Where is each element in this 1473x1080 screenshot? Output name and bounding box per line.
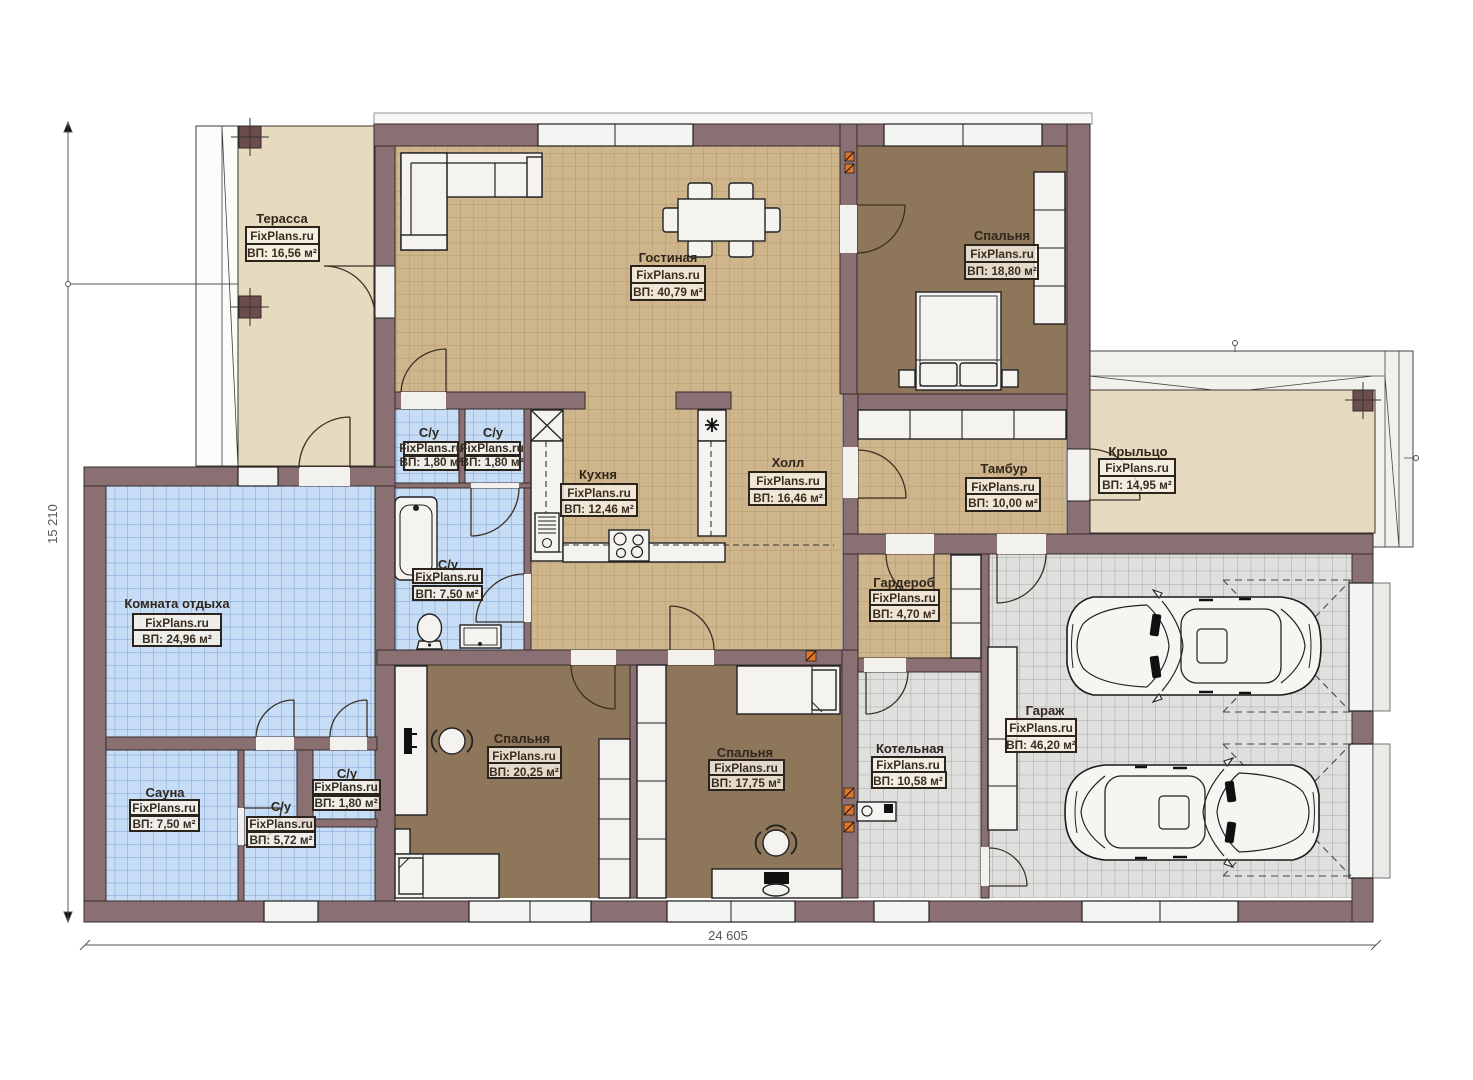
svg-text:24 605: 24 605 bbox=[708, 928, 748, 943]
svg-text:ВП: 46,20 м²: ВП: 46,20 м² bbox=[1006, 738, 1076, 752]
svg-text:FixPlans.ru: FixPlans.ru bbox=[714, 761, 778, 775]
svg-text:FixPlans.ru: FixPlans.ru bbox=[492, 749, 556, 763]
svg-text:ВП: 10,58 м²: ВП: 10,58 м² bbox=[873, 774, 943, 788]
svg-text:FixPlans.ru: FixPlans.ru bbox=[460, 441, 524, 455]
svg-text:ВП: 5,72 м²: ВП: 5,72 м² bbox=[249, 833, 312, 847]
svg-text:Спальня: Спальня bbox=[974, 228, 1030, 243]
svg-text:FixPlans.ru: FixPlans.ru bbox=[399, 441, 463, 455]
svg-text:ВП: 40,79 м²: ВП: 40,79 м² bbox=[633, 285, 703, 299]
svg-text:FixPlans.ru: FixPlans.ru bbox=[145, 616, 209, 630]
svg-text:FixPlans.ru: FixPlans.ru bbox=[756, 474, 820, 488]
svg-text:FixPlans.ru: FixPlans.ru bbox=[132, 801, 196, 815]
svg-text:С/у: С/у bbox=[337, 766, 358, 781]
svg-text:ВП: 24,96 м²: ВП: 24,96 м² bbox=[142, 632, 212, 646]
svg-text:С/у: С/у bbox=[419, 425, 440, 440]
svg-text:ВП: 12,46 м²: ВП: 12,46 м² bbox=[564, 502, 634, 516]
svg-text:FixPlans.ru: FixPlans.ru bbox=[636, 268, 700, 282]
svg-text:FixPlans.ru: FixPlans.ru bbox=[872, 591, 936, 605]
svg-text:Спальня: Спальня bbox=[717, 745, 773, 760]
svg-text:FixPlans.ru: FixPlans.ru bbox=[1105, 461, 1169, 475]
svg-text:ВП: 18,80 м²: ВП: 18,80 м² bbox=[967, 264, 1037, 278]
svg-text:С/у: С/у bbox=[483, 425, 504, 440]
svg-text:Кухня: Кухня bbox=[579, 467, 617, 482]
svg-text:ВП: 20,25 м²: ВП: 20,25 м² bbox=[489, 765, 559, 779]
svg-text:ВП: 7,50 м²: ВП: 7,50 м² bbox=[415, 587, 478, 601]
svg-text:ВП: 4,70 м²: ВП: 4,70 м² bbox=[872, 607, 935, 621]
svg-text:ВП: 1,80 м²: ВП: 1,80 м² bbox=[314, 796, 377, 810]
svg-text:FixPlans.ru: FixPlans.ru bbox=[971, 480, 1035, 494]
svg-text:Терасса: Терасса bbox=[256, 211, 308, 226]
svg-text:ВП: 16,46 м²: ВП: 16,46 м² bbox=[753, 491, 823, 505]
svg-text:FixPlans.ru: FixPlans.ru bbox=[250, 229, 314, 243]
svg-text:ВП: 16,56 м²: ВП: 16,56 м² bbox=[247, 246, 317, 260]
svg-text:FixPlans.ru: FixPlans.ru bbox=[415, 570, 479, 584]
svg-text:Гостиная: Гостиная bbox=[639, 250, 698, 265]
svg-text:FixPlans.ru: FixPlans.ru bbox=[876, 758, 940, 772]
svg-text:ВП: 7,50 м²: ВП: 7,50 м² bbox=[132, 817, 195, 831]
svg-text:Гардероб: Гардероб bbox=[873, 575, 934, 590]
svg-text:Комната отдыха: Комната отдыха bbox=[124, 596, 230, 611]
svg-text:FixPlans.ru: FixPlans.ru bbox=[249, 817, 313, 831]
svg-text:ВП: 14,95 м²: ВП: 14,95 м² bbox=[1102, 478, 1172, 492]
svg-text:Крыльцо: Крыльцо bbox=[1108, 444, 1167, 459]
svg-text:Холл: Холл bbox=[772, 455, 805, 470]
svg-text:FixPlans.ru: FixPlans.ru bbox=[314, 780, 378, 794]
svg-text:FixPlans.ru: FixPlans.ru bbox=[567, 486, 631, 500]
svg-text:Котельная: Котельная bbox=[876, 741, 944, 756]
svg-text:ВП: 1,80 м²: ВП: 1,80 м² bbox=[460, 455, 523, 469]
svg-text:С/у: С/у bbox=[271, 799, 292, 814]
svg-text:ВП: 17,75 м²: ВП: 17,75 м² bbox=[711, 776, 781, 790]
svg-text:Спальня: Спальня bbox=[494, 731, 550, 746]
svg-text:FixPlans.ru: FixPlans.ru bbox=[970, 247, 1034, 261]
svg-text:Тамбур: Тамбур bbox=[980, 461, 1027, 476]
svg-text:ВП: 1,80 м²: ВП: 1,80 м² bbox=[399, 455, 462, 469]
svg-text:15 210: 15 210 bbox=[45, 504, 60, 544]
svg-text:FixPlans.ru: FixPlans.ru bbox=[1009, 721, 1073, 735]
svg-text:Гараж: Гараж bbox=[1026, 703, 1066, 718]
svg-text:ВП: 10,00 м²: ВП: 10,00 м² bbox=[968, 496, 1038, 510]
svg-text:Сауна: Сауна bbox=[145, 785, 185, 800]
